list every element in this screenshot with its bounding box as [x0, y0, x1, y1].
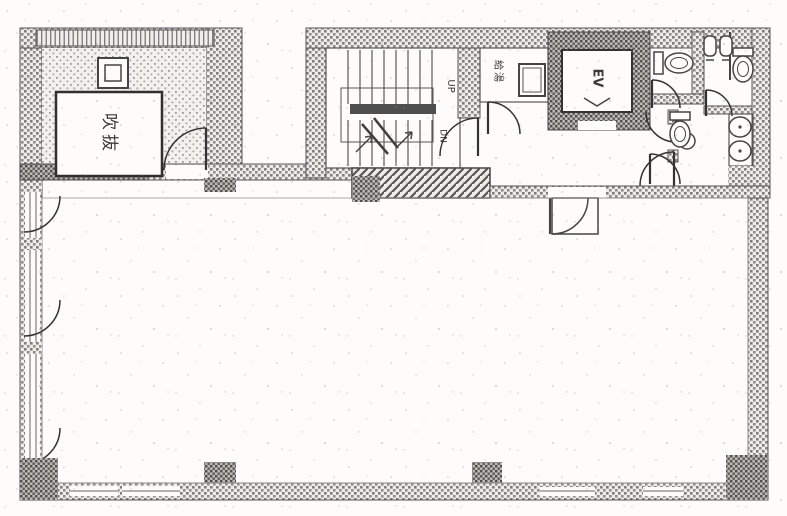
floor-plan-svg: 吹抜 UP DN: [0, 0, 787, 516]
scan-noise: [0, 0, 787, 516]
scanned-floor-plan: 吹抜 UP DN: [0, 0, 787, 516]
